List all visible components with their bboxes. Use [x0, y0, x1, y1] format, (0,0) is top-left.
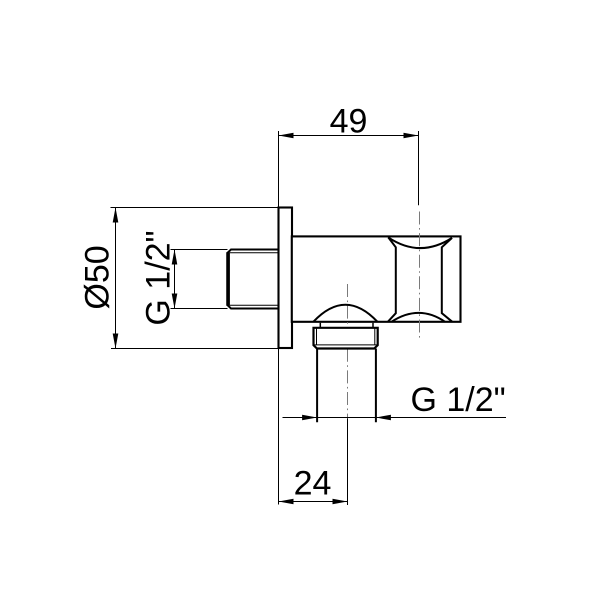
svg-text:Ø50: Ø50 [79, 245, 117, 309]
svg-text:24: 24 [294, 465, 332, 503]
svg-text:G 1/2": G 1/2" [140, 230, 178, 325]
svg-text:G 1/2": G 1/2" [411, 381, 506, 419]
svg-text:49: 49 [330, 103, 368, 141]
